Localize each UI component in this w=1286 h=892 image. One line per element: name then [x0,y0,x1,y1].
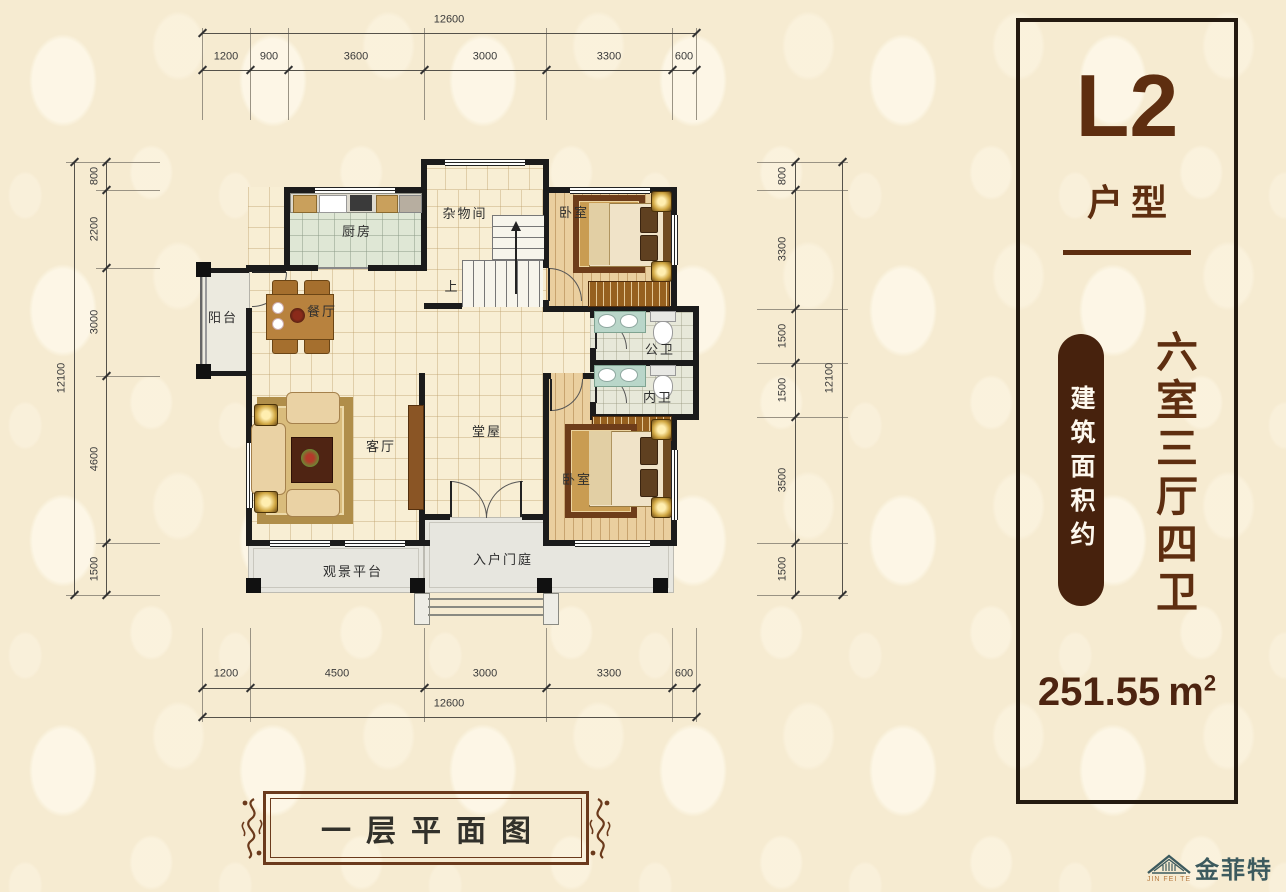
nightstand-lamp [651,497,672,518]
wall-segment [284,265,318,271]
dim-label: 1200 [214,669,238,680]
area-value-line: 251.55m2 [1020,670,1234,715]
stairs-up-label: 上 [444,279,459,295]
area-prefix-pill: 建筑面积约 [1058,334,1104,606]
kitchen-appliance [376,195,398,213]
entry-door-leaf [450,481,452,517]
dim-extension-line [757,190,848,191]
dim-extension-line [757,595,848,596]
layout-description: 六室三厅四卫 [1146,330,1202,630]
frame-ornament-right-icon [586,796,614,860]
dim-extension-line [546,628,547,722]
bed-pillow [640,469,658,497]
floor-lamp [254,404,278,426]
dim-extension-line [757,543,848,544]
dim-extension-line [424,28,425,120]
dim-label: 600 [675,669,693,680]
dining-centerpiece [290,308,305,323]
entry-step-line [428,614,543,616]
dim-total-bottom: 12600 [434,699,465,710]
window [575,540,650,547]
dim-label: 600 [675,52,693,63]
nightstand-lamp [651,191,672,212]
wall-segment [246,540,270,546]
dim-extension-line [66,595,160,596]
dim-extension-line [202,628,203,722]
wall-segment [543,373,549,546]
house-icon [1146,852,1192,876]
stairs-up-arrow [511,221,521,231]
sofa [286,489,340,517]
room-label-storage: 杂物间 [442,206,487,222]
entry-door-leaf [520,481,522,517]
layout-description-text: 六室三厅四卫 [1144,330,1205,618]
dim-total-top: 12600 [434,15,465,26]
sliding-door-line [318,267,368,269]
room-label-bath-public: 公卫 [645,342,675,358]
dim-label: 3000 [90,310,101,334]
room-label-hall: 堂屋 [472,424,502,440]
dim-line [795,162,796,595]
door-leaf [252,271,286,273]
dim-label: 3300 [597,669,621,680]
nightstand-lamp [651,419,672,440]
dining-plate [272,302,284,314]
porch-pillar [653,578,668,593]
door-leaf [548,268,550,301]
entry-step-line [428,598,543,600]
dim-extension-line [546,28,547,120]
area-prefix-text: 建筑面积约 [1063,385,1099,555]
panel-divider [1063,250,1191,255]
porch-pillar [410,578,425,593]
tv-cabinet [408,405,424,510]
unit-type-label: 户型 [1020,174,1234,226]
room-label-platform: 观景平台 [323,564,383,580]
wall-segment [405,540,430,546]
frame-ornament-left-icon [238,796,266,860]
dim-extension-line [202,28,203,120]
room-label-kitchen: 厨房 [342,224,372,240]
dim-label: 3300 [597,52,621,63]
room-label-dining: 餐厅 [307,304,337,320]
dim-label: 1500 [778,324,789,348]
dim-label: 1500 [778,557,789,581]
wall-segment [650,540,677,546]
unit-info-panel: L2 户型 建筑面积约 六室三厅四卫 251.55m2 [1016,18,1238,804]
balcony-rail [200,273,202,371]
bed-blanket [589,431,612,505]
wall-segment [330,540,345,546]
window [270,540,330,547]
room-label-living: 客厅 [366,439,396,455]
bed-pillow [640,437,658,465]
wall-segment [543,540,575,546]
wall-pillar [196,262,211,277]
porch-pillar [246,578,261,593]
dim-extension-line [250,628,251,722]
floor-lamp [254,491,278,513]
logo-house-block: JIN FEI TE [1146,852,1192,883]
dim-label: 3000 [473,52,497,63]
dim-extension-line [250,28,251,120]
sink-basin [620,368,638,382]
bed-blanket [589,203,610,265]
dim-label: 3300 [778,237,789,261]
sofa [286,392,340,424]
unit-code: L2 [1020,62,1234,150]
window [345,540,405,547]
room-label-entrance: 入户门庭 [473,552,533,568]
balcony-rail [205,273,207,371]
kitchen-appliance [293,195,317,213]
dim-extension-line [424,628,425,722]
dim-label: 3500 [778,468,789,492]
room-label-bedroom: 卧室 [559,205,589,221]
dim-extension-line [757,417,848,418]
dim-label: 2200 [90,217,101,241]
dim-label: 800 [778,167,789,185]
nightstand-lamp [651,261,672,282]
dim-total-right: 12100 [825,363,836,394]
room-label-bath-private: 内卫 [643,390,673,406]
dim-label: 3000 [473,669,497,680]
dim-extension-line [696,28,697,120]
room-label-balcony: 阳台 [208,310,238,326]
wall-segment [424,303,462,309]
dim-label: 800 [90,167,101,185]
area-unit: m [1168,670,1204,714]
dim-label: 1200 [214,52,238,63]
drawing-title-inner-frame: 一层平面图 [270,798,582,858]
floorplan-page: 厨房 杂物间 卧室 餐厅 阳台 公卫 内卫 客厅 堂屋 卧室 观景平台 入户门庭… [0,0,1286,892]
area-value: 251.55 [1038,670,1160,714]
wall-segment [421,159,427,271]
sink-basin [598,314,616,328]
dim-extension-line [66,162,160,163]
dim-extension-line [696,628,697,722]
dim-label: 1500 [778,378,789,402]
entry-step-block [543,593,559,625]
sofa [251,423,286,495]
dim-total-left: 12100 [57,363,68,394]
area-sup: 2 [1204,671,1216,696]
dim-extension-line [757,309,848,310]
stairs-lower-flight [462,260,543,307]
window [570,187,650,194]
sink-basin [620,314,638,328]
window [671,450,678,520]
dim-label: 4500 [325,669,349,680]
dim-label: 3600 [344,52,368,63]
dim-label: 4600 [90,447,101,471]
kitchen-sink [319,195,347,213]
drawing-title: 一层平面图 [306,806,546,850]
drawing-title-frame: 一层平面图 [263,791,589,865]
dim-line [74,162,75,595]
dim-line [106,162,107,595]
porch-pillar [537,578,552,593]
kitchen-stove [350,195,372,211]
dim-extension-line [672,28,673,120]
bed-pillow [640,235,658,261]
window [445,159,525,166]
door-leaf [550,379,552,411]
wall-segment [522,514,546,520]
dim-label: 1500 [90,557,101,581]
brand-logo: JIN FEI TE 金菲特 [1146,850,1273,885]
dim-line [202,688,696,689]
dining-plate [272,318,284,330]
wall-pillar [196,364,211,379]
dim-extension-line [672,628,673,722]
room-label-bedroom: 卧室 [562,472,592,488]
table-flowers [301,449,319,467]
dim-line [842,162,843,595]
dim-line [202,33,696,34]
dim-extension-line [288,28,289,120]
floor-storage [424,162,546,190]
entry-step-line [428,606,543,608]
dim-line [202,717,696,718]
dim-line [202,70,696,71]
wall-segment [368,265,424,271]
wall-segment [424,514,450,520]
window [671,215,678,265]
dim-extension-line [757,162,848,163]
sink-basin [598,368,616,382]
stairs-direction-line [515,230,517,294]
logo-subtext: JIN FEI TE [1147,876,1191,883]
logo-name: 金菲特 [1195,850,1273,885]
dim-label: 900 [260,52,278,63]
kitchen-appliance [399,195,422,213]
wardrobe [588,281,670,307]
